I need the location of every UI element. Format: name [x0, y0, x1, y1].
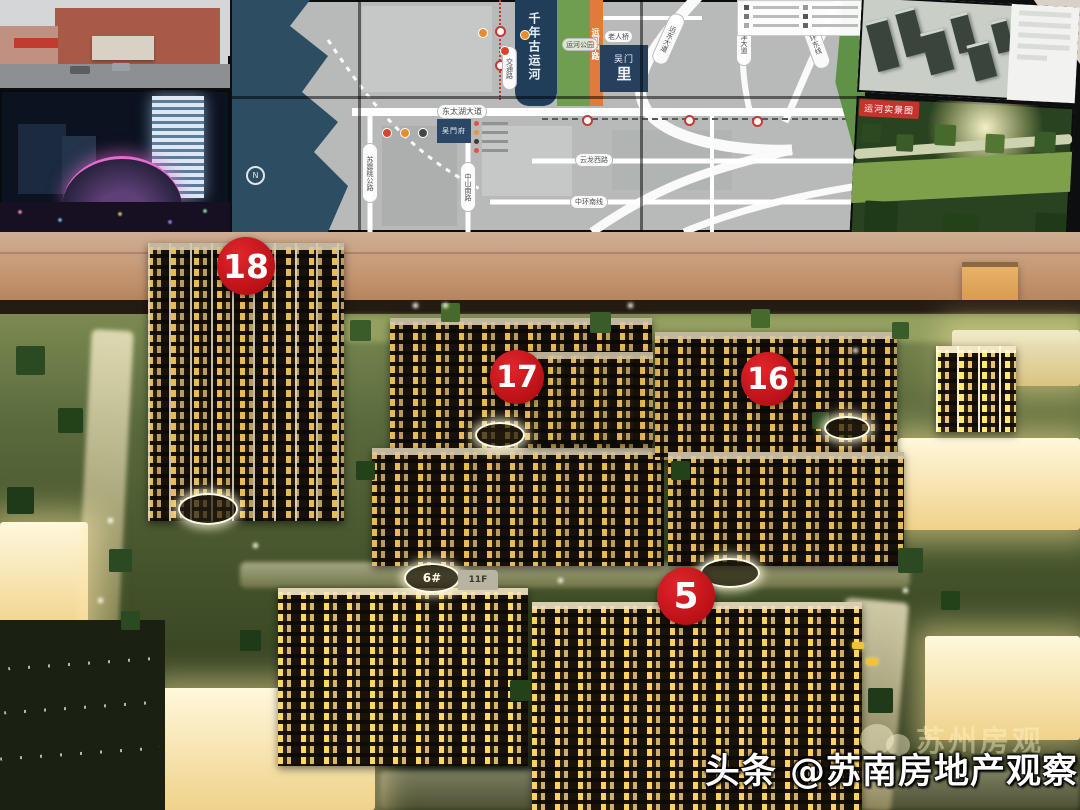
project-name-bottom: 里	[616, 67, 631, 82]
screen-bezel	[640, 0, 643, 232]
park-trees	[865, 126, 866, 127]
poi-icon	[500, 46, 510, 56]
building-badge-16: 16	[741, 352, 795, 406]
school-canopy	[92, 36, 154, 60]
dim-tower	[18, 124, 66, 194]
building-badge-5: 5	[657, 567, 715, 625]
lit-podium	[898, 438, 1080, 530]
screen-bezel	[358, 0, 361, 232]
metro-station-icon	[684, 115, 695, 126]
poi-icon	[478, 28, 488, 38]
bridge-label: 老人桥	[604, 30, 633, 43]
screen-night-mall-photo	[0, 90, 230, 232]
entrance-sign	[178, 493, 238, 525]
screen-location-map: 千年古运河 运河中路 交通路 运河公园 吴门 里 老人桥 运东大道 津大道 中环…	[232, 0, 865, 232]
sales-center-photo: 千年古运河 运河中路 交通路 运河公园 吴门 里 老人桥 运东大道 津大道 中环…	[0, 0, 1080, 810]
watermark-text: 头条 @苏南房地产观察	[705, 743, 1078, 794]
screen-school-rendering	[0, 0, 230, 88]
info-panel	[1007, 4, 1080, 103]
road-label: 东太湖大道	[437, 104, 487, 119]
park-label: 运河公园	[562, 38, 598, 51]
model-building-mid	[525, 352, 653, 444]
red-banner	[14, 38, 58, 48]
compass-icon: N	[246, 166, 265, 185]
poi-icon	[520, 30, 530, 40]
street-lamps	[0, 0, 1, 1]
taxi	[852, 642, 864, 649]
road-label: 中环南线	[570, 195, 608, 209]
building-badge-18: 18	[217, 237, 275, 295]
metro-station-icon	[495, 26, 506, 37]
screen-aerial-rendering	[857, 0, 1080, 103]
screen-bezel	[232, 96, 865, 99]
canal-label: 千年古运河	[526, 12, 543, 82]
poi-list	[474, 120, 508, 154]
building-badge-17: 17	[490, 350, 544, 404]
project-name-top: 吴门	[614, 56, 634, 65]
poi-icon	[400, 128, 410, 138]
floor-count-sign: 11F	[458, 570, 498, 590]
model-building-17	[372, 448, 664, 566]
metro-station-icon	[752, 116, 763, 127]
car	[70, 66, 90, 74]
screen-park-photo: 运河实景图	[849, 96, 1074, 247]
road-label: 苏震桃公路	[362, 143, 378, 203]
building-sign	[475, 422, 525, 448]
building-6-sign: 6#	[404, 563, 460, 593]
building-sign	[824, 416, 870, 440]
watermark-account: @苏南房地产观察	[790, 752, 1078, 792]
poi-icon	[418, 128, 428, 138]
lit-podium	[0, 522, 88, 634]
road-label: 云龙西路	[575, 153, 613, 167]
map-legend	[737, 0, 865, 36]
road-label: 中山南路	[460, 162, 476, 212]
model-building-far-right	[936, 346, 1016, 432]
poi-wumenfu: 吴門府	[437, 119, 471, 143]
poi-icon	[382, 128, 392, 138]
watermark-platform: 头条	[705, 752, 790, 792]
taxi	[866, 658, 878, 665]
car	[112, 63, 130, 71]
park-lawn	[851, 152, 1072, 203]
parking-lot	[0, 620, 165, 810]
model-building-16	[668, 452, 904, 566]
night-street	[0, 202, 230, 232]
photo-tag: 运河实景图	[859, 99, 920, 119]
metro-station-icon	[582, 115, 593, 126]
model-building-6	[278, 588, 528, 766]
